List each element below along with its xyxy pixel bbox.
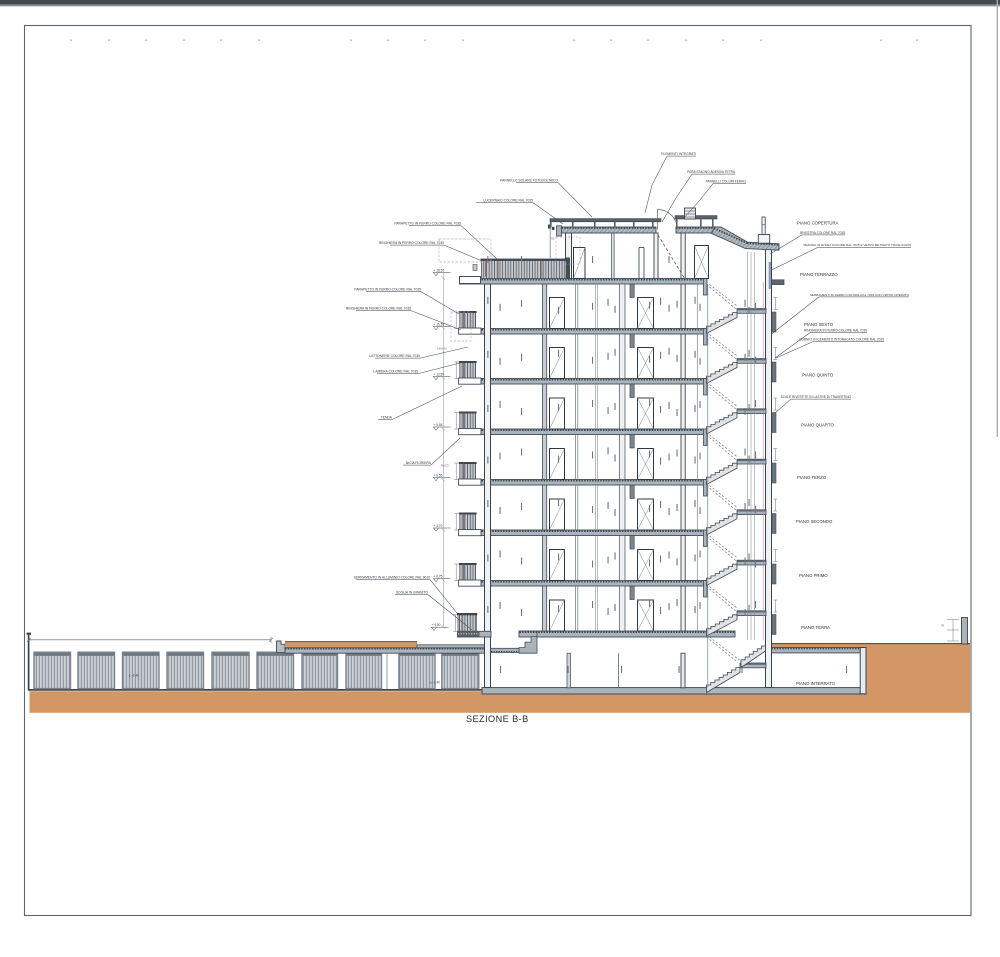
svg-text:PIANO SESTO: PIANO SESTO: [804, 322, 834, 327]
svg-text:PIANO COPERTURA: PIANO COPERTURA: [797, 221, 839, 226]
svg-text:PANNELLI COLORI FERRO: PANNELLI COLORI FERRO: [706, 179, 747, 183]
svg-text:SOGLIA IN GRANITO: SOGLIA IN GRANITO: [396, 591, 429, 595]
svg-text:BVC5: BVC5: [441, 464, 449, 468]
svg-text:PARAPETTO IN FERRO COLORE RAL: PARAPETTO IN FERRO COLORE RAL 7035: [394, 222, 461, 226]
svg-text:SEZIONE B-B: SEZIONE B-B: [466, 714, 529, 724]
svg-text:± -2.40: ± -2.40: [430, 681, 440, 685]
svg-text:+ 12.55: + 12.55: [434, 372, 445, 376]
svg-text:+ 9.55: + 9.55: [434, 423, 443, 427]
svg-text:SERRAMENTI DI FERRO COLORE RAL: SERRAMENTI DI FERRO COLORE RAL 7035 CON …: [810, 293, 910, 297]
svg-text:PIANO TERZO: PIANO TERZO: [797, 475, 827, 480]
svg-text:95: 95: [551, 237, 555, 241]
svg-text:NICIA FIORIERA: NICIA FIORIERA: [406, 461, 432, 465]
svg-text:PEDANA IN GHIAIA COLORE RAL 70: PEDANA IN GHIAIA COLORE RAL 7035 E VETRO…: [803, 243, 911, 247]
svg-text:ELEMENTI INTEGRATI: ELEMENTI INTEGRATI: [661, 152, 696, 156]
svg-text:RINGHIERA IN FERRO COLORE RAL: RINGHIERA IN FERRO COLORE RAL 7035: [379, 241, 444, 245]
svg-text:+ 3.70: + 3.70: [434, 524, 443, 528]
svg-text:RINGHIERA IN FERRO COLORE RAL: RINGHIERA IN FERRO COLORE RAL 7035: [346, 307, 411, 311]
svg-text:+ 4.00: + 4.00: [432, 623, 441, 627]
svg-text:± -2.40: ± -2.40: [129, 674, 139, 678]
svg-text:+ 6.55: + 6.55: [434, 473, 443, 477]
svg-text:PIANO PRIMO: PIANO PRIMO: [799, 573, 828, 578]
svg-text:PIANO SECONDO: PIANO SECONDO: [796, 519, 833, 524]
svg-text:+ 0.75: + 0.75: [434, 574, 443, 578]
svg-text:PARAPETTO IN FERRO COLORE RAL: PARAPETTO IN FERRO COLORE RAL 7035: [354, 288, 421, 292]
svg-text:180x45: 180x45: [437, 347, 447, 351]
svg-text:SCALE RIVESTITE IN LASTRE DI T: SCALE RIVESTITE IN LASTRE DI TRAVERTINO: [781, 395, 852, 399]
svg-text:CORNICI IN CEMENTO INTONACATO: CORNICI IN CEMENTO INTONACATO COLORE RAL…: [799, 338, 884, 342]
svg-text:PIANO QUINTO: PIANO QUINTO: [802, 373, 834, 378]
svg-text:RINGHIERA IN FERRO COLORE RAL: RINGHIERA IN FERRO COLORE RAL 7035: [804, 329, 867, 333]
svg-text:RIVESTRA COLORE RAL 7035: RIVESTRA COLORE RAL 7035: [800, 231, 845, 235]
svg-text:PARA STAGNO ADESIVA TETRA: PARA STAGNO ADESIVA TETRA: [687, 170, 736, 174]
svg-text:SERRAMENTO IN ALLUMINIO COLORE: SERRAMENTO IN ALLUMINIO COLORE RAL 9010: [354, 576, 430, 580]
svg-text:PIANO QUARTO: PIANO QUARTO: [801, 423, 834, 428]
svg-text:70: 70: [941, 624, 945, 628]
svg-text:LUCERNAIO COLORE RAL 7035: LUCERNAIO COLORE RAL 7035: [483, 199, 533, 203]
svg-text:TENDA: TENDA: [381, 416, 393, 420]
svg-text:PIANO TERRAZZO: PIANO TERRAZZO: [800, 272, 838, 277]
svg-text:LAMIERA COLORE RAL 7035: LAMIERA COLORE RAL 7035: [373, 370, 418, 374]
svg-text:PIANO INTERRATO: PIANO INTERRATO: [796, 681, 836, 686]
svg-text:LATTONERIE COLORE RAL 7035: LATTONERIE COLORE RAL 7035: [369, 354, 420, 358]
svg-text:+ 18.55: + 18.55: [434, 268, 445, 272]
svg-text:PIANO TERRA: PIANO TERRA: [801, 625, 830, 630]
svg-text:PANNELLO SOLARE FOTOVOLTAICO: PANNELLO SOLARE FOTOVOLTAICO: [500, 179, 558, 183]
